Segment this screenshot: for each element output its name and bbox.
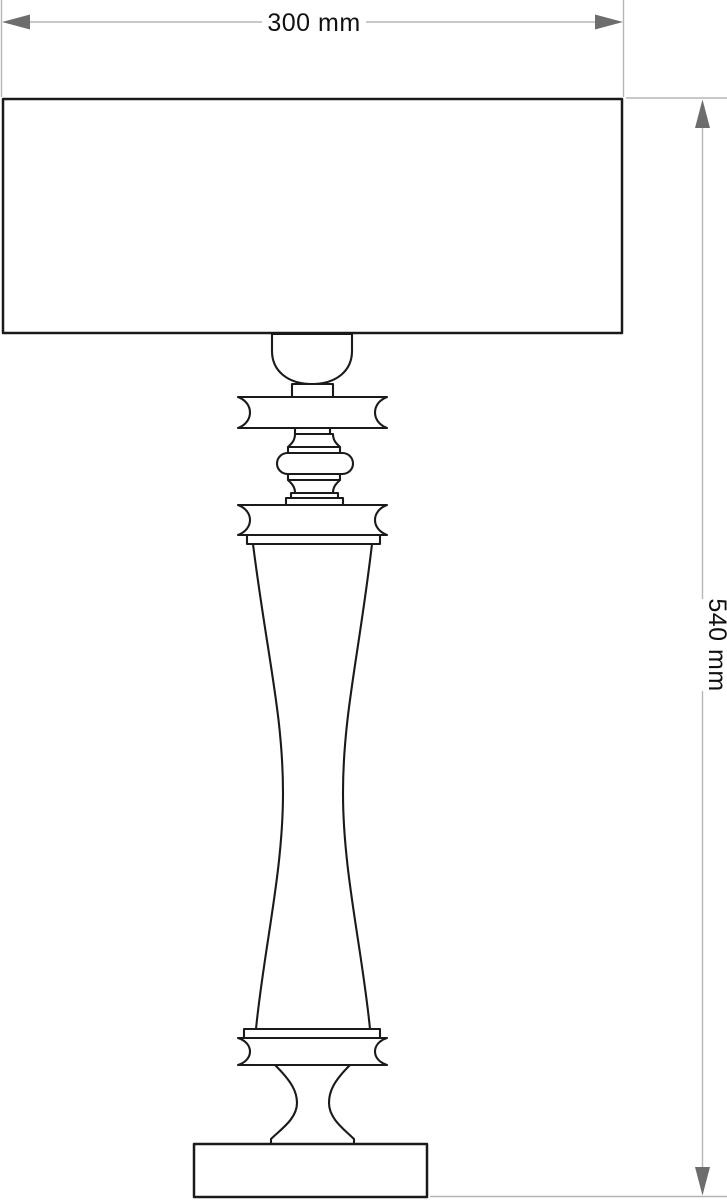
lamp-figure	[3, 99, 622, 1197]
column-shaft	[253, 544, 372, 1029]
middle-spool-disc	[238, 505, 387, 535]
arrow-down-icon	[695, 1167, 710, 1196]
column-capital-plate	[247, 535, 380, 544]
arrow-right-icon	[595, 15, 623, 30]
arrow-left-icon	[2, 15, 30, 30]
lower-spool-disc	[238, 1038, 387, 1065]
vase-foot	[271, 1065, 354, 1144]
width-dimension-label: 300 mm	[267, 9, 360, 37]
lamp-technical-drawing: 300 mm 540 mm	[0, 0, 727, 1200]
upper-neck	[292, 384, 333, 397]
column-foot-plate	[244, 1029, 380, 1038]
upper-spool-disc	[238, 397, 387, 428]
base-plinth	[194, 1144, 427, 1197]
finial-bell-lower	[288, 480, 340, 493]
lamp-shade	[3, 99, 622, 333]
drawing-canvas: 300 mm 540 mm	[0, 0, 727, 1200]
height-dimension-label: 540 mm	[703, 598, 727, 691]
finial-bell-upper	[288, 434, 340, 447]
finial-torus	[277, 453, 353, 474]
socket-cup	[272, 334, 352, 384]
arrow-up-icon	[695, 100, 710, 129]
